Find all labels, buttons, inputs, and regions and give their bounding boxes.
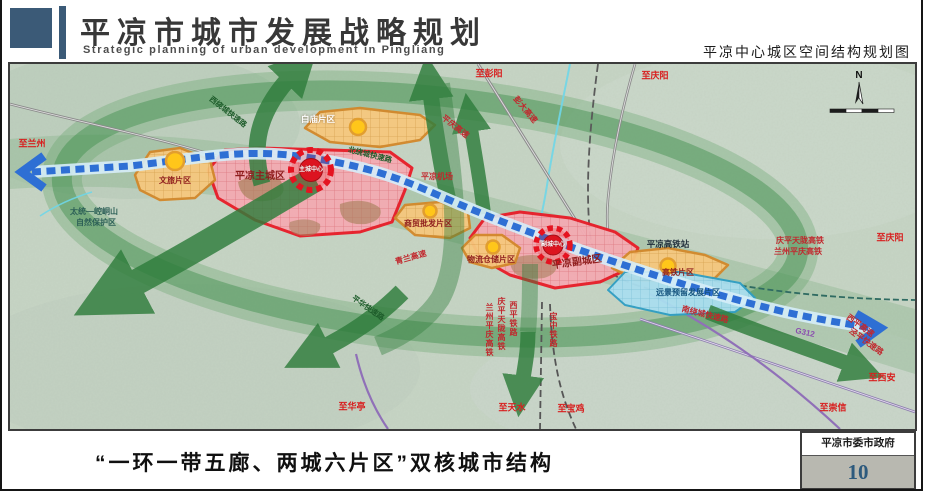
logo-square (10, 8, 52, 48)
planning-document-page: 平凉市城市发展战略规划 Strategic planning of urban … (0, 0, 925, 500)
page-border-left (0, 0, 2, 491)
map-title: 平凉中心城区空间结构规划图 (703, 42, 911, 62)
map-caption: “一环一带五廊、两城六片区”双核城市结构 (95, 447, 554, 477)
agency-name: 平凉市委市政府 (802, 433, 914, 456)
page-border-right (921, 0, 923, 491)
page-border-bottom (0, 489, 923, 491)
scale-bar (830, 109, 894, 113)
planning-map: N 至兰州 太统—崆峒山 自然保护区 文旅片区 平凉主城区 主城中心 白庙片区 … (10, 64, 915, 429)
logo-bar (59, 6, 66, 59)
map-graphics (10, 64, 915, 429)
page-subtitle-en: Strategic planning of urban development … (83, 44, 446, 56)
sub-core-dot (543, 235, 563, 255)
title-block: 平凉市委市政府 10 (800, 431, 916, 489)
page-number: 10 (802, 456, 914, 488)
main-core-dot (300, 159, 323, 182)
